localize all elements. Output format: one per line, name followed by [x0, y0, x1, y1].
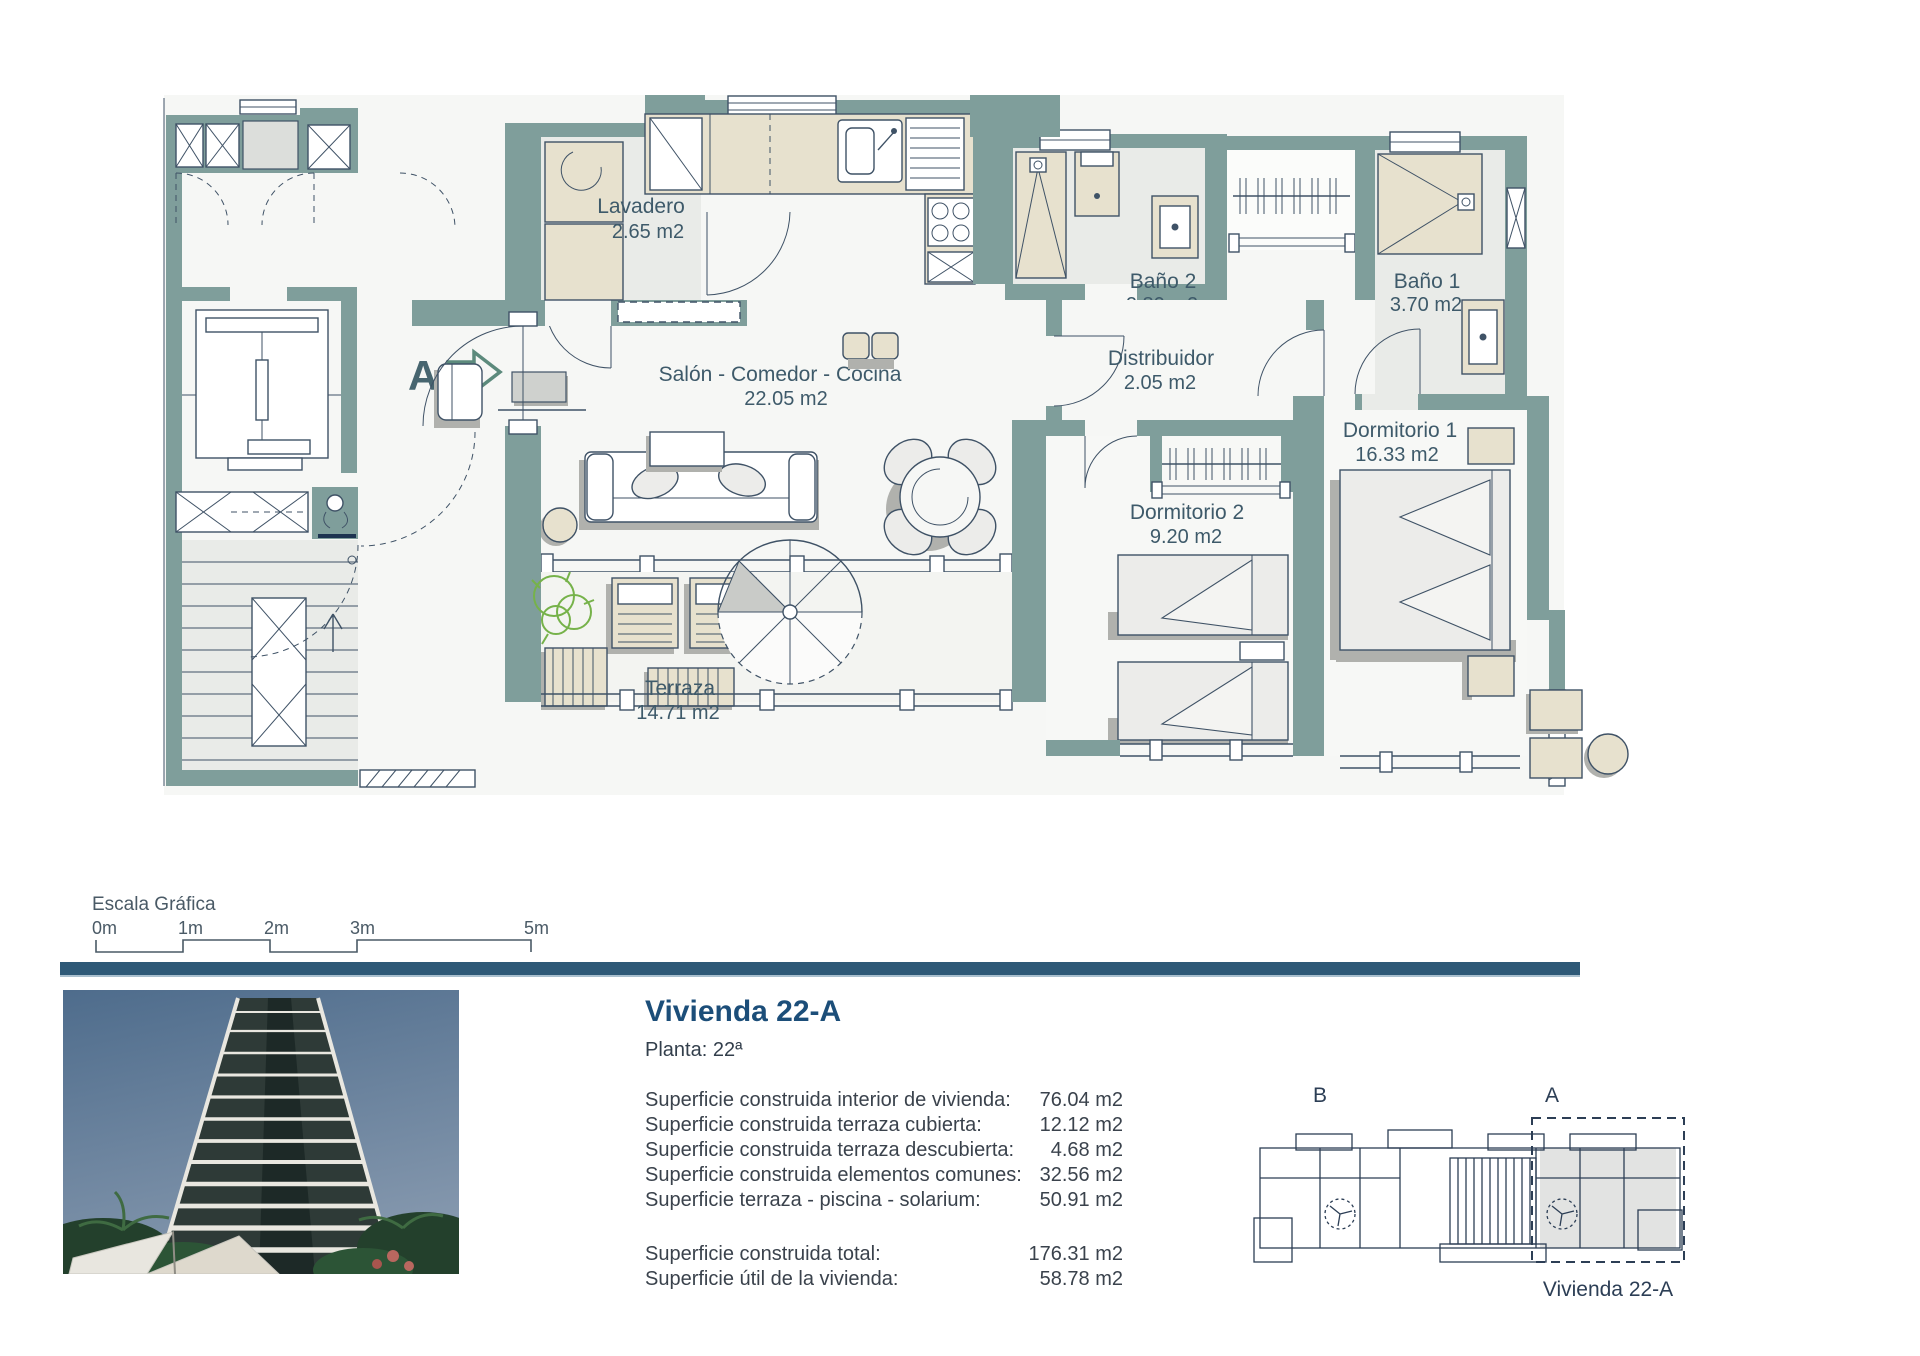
surface-label: Superficie construida elementos comunes: [645, 1163, 1022, 1188]
stove-icon [928, 198, 974, 246]
room-label: Dormitorio 2 [1130, 501, 1244, 524]
surface-label: Superficie terraza - piscina - solarium: [645, 1188, 981, 1213]
room-area: 22.05 m2 [744, 388, 827, 410]
terrace-seat-icon [1530, 738, 1582, 778]
dish-rack-icon [906, 118, 964, 190]
surface-value: 176.31 m2 [1028, 1242, 1123, 1267]
shower-icon [1016, 152, 1066, 278]
room-area: 14.71 m2 [636, 702, 719, 724]
chair-icon [843, 333, 869, 359]
surface-label: Superficie construida terraza cubierta: [645, 1113, 982, 1138]
scale-tick: 5m [524, 918, 549, 938]
key-plan: B A [1240, 1078, 1700, 1318]
lounge-chair-icon [606, 578, 678, 654]
keyplan-caption: Vivienda 22-A [1543, 1278, 1673, 1301]
floor-plan-drawing: A Lavadero 2.65 m2 [0, 0, 1920, 960]
keyplan-unit-a-label: A [1545, 1084, 1559, 1107]
terrace-seat-icon [1530, 690, 1582, 730]
sink-icon [838, 120, 902, 182]
nightstand-icon [1468, 656, 1514, 696]
surface-label: Superficie construida interior de vivien… [645, 1088, 1011, 1113]
unit-info: Vivienda 22-A Planta: 22ª Superficie con… [645, 995, 1205, 1292]
scale-title: Escala Gráfica [92, 894, 216, 915]
surface-total-row: Superficie construida total: 176.31 m2 [645, 1242, 1123, 1267]
single-bed-icon [1108, 555, 1288, 640]
single-bed-icon [1108, 662, 1288, 744]
surface-row: Superficie terraza - piscina - solarium:… [645, 1188, 1123, 1213]
scale-tick: 3m [350, 918, 375, 938]
room-label: Dormitorio 1 [1343, 419, 1457, 442]
building-photo [63, 990, 459, 1274]
scale-bar: Escala Gráfica 0m 1m 2m 3m 5m [92, 894, 549, 952]
coffee-table-icon [650, 432, 724, 466]
room-label: Baño 2 [1130, 270, 1197, 293]
room-area: 2.65 m2 [612, 221, 684, 243]
keyplan-fan-icon [1325, 1199, 1355, 1229]
slat-table-icon [541, 648, 607, 710]
surface-value: 12.12 m2 [1040, 1113, 1123, 1138]
scale-tick: 1m [178, 918, 203, 938]
room-label: Lavadero [597, 195, 685, 218]
surface-row: Superficie construida interior de vivien… [645, 1088, 1123, 1113]
washbasin-icon [1152, 196, 1198, 258]
scale-tick: 0m [92, 918, 117, 938]
keyplan-building-outline [1254, 1118, 1684, 1262]
floor-number: Planta: 22ª [645, 1039, 1205, 1062]
double-bed-icon [1330, 470, 1516, 662]
scale-tick: 2m [264, 918, 289, 938]
surface-value: 32.56 m2 [1040, 1163, 1123, 1188]
spiral-stair-icon [718, 540, 862, 684]
room-label: Distribuidor [1108, 347, 1214, 370]
surface-value: 58.78 m2 [1040, 1267, 1123, 1292]
key-plan-drawing: B A [1240, 1078, 1700, 1318]
section-hatch [360, 770, 475, 787]
nightstand-icon [1468, 428, 1514, 464]
shower-icon [1378, 154, 1482, 254]
surface-label: Superficie construida total: [645, 1242, 881, 1267]
tv-icon [512, 372, 566, 402]
washbasin-icon [1462, 300, 1504, 374]
keyplan-unit-b-label: B [1313, 1084, 1327, 1107]
room-label: Terraza [645, 677, 715, 700]
surface-label: Superficie construida terraza descubiert… [645, 1138, 1014, 1163]
terrace-table-icon [1588, 734, 1628, 774]
room-dormitorio2: Dormitorio 2 9.20 m2 [1012, 420, 1293, 760]
surface-total-row: Superficie útil de la vivienda: 58.78 m2 [645, 1267, 1123, 1292]
surface-row: Superficie construida elementos comunes:… [645, 1163, 1123, 1188]
surface-value: 76.04 m2 [1040, 1088, 1123, 1113]
room-label: Baño 1 [1394, 270, 1461, 293]
building-render-image [63, 990, 459, 1274]
keyplan-stairs-icon [1450, 1158, 1536, 1244]
unit-title: Vivienda 22-A [645, 995, 1205, 1029]
floorplan-page: A Lavadero 2.65 m2 [0, 0, 1920, 1356]
side-table-icon [543, 508, 577, 542]
room-area: 3.70 m2 [1390, 294, 1462, 316]
chair-icon [872, 333, 898, 359]
surface-row: Superficie construida terraza cubierta: … [645, 1113, 1123, 1138]
surface-label: Superficie útil de la vivienda: [645, 1267, 898, 1292]
staircase-icon [182, 540, 358, 786]
nightstand-icon [1240, 642, 1284, 660]
section-a-label: A [408, 352, 438, 399]
surface-row: Superficie construida terraza descubiert… [645, 1138, 1123, 1163]
armchair-icon [438, 364, 482, 420]
toilet-icon [1075, 152, 1119, 216]
room-area: 16.33 m2 [1355, 444, 1438, 466]
surface-value: 4.68 m2 [1051, 1138, 1123, 1163]
surface-value: 50.91 m2 [1040, 1188, 1123, 1213]
room-bano1: Baño 1 3.70 m2 [1355, 132, 1527, 410]
room-area: 2.05 m2 [1124, 372, 1196, 394]
vent-shaft-icon [176, 121, 350, 169]
closet-icon [1227, 136, 1355, 252]
room-area: 9.20 m2 [1150, 526, 1222, 548]
section-divider [60, 962, 1580, 977]
